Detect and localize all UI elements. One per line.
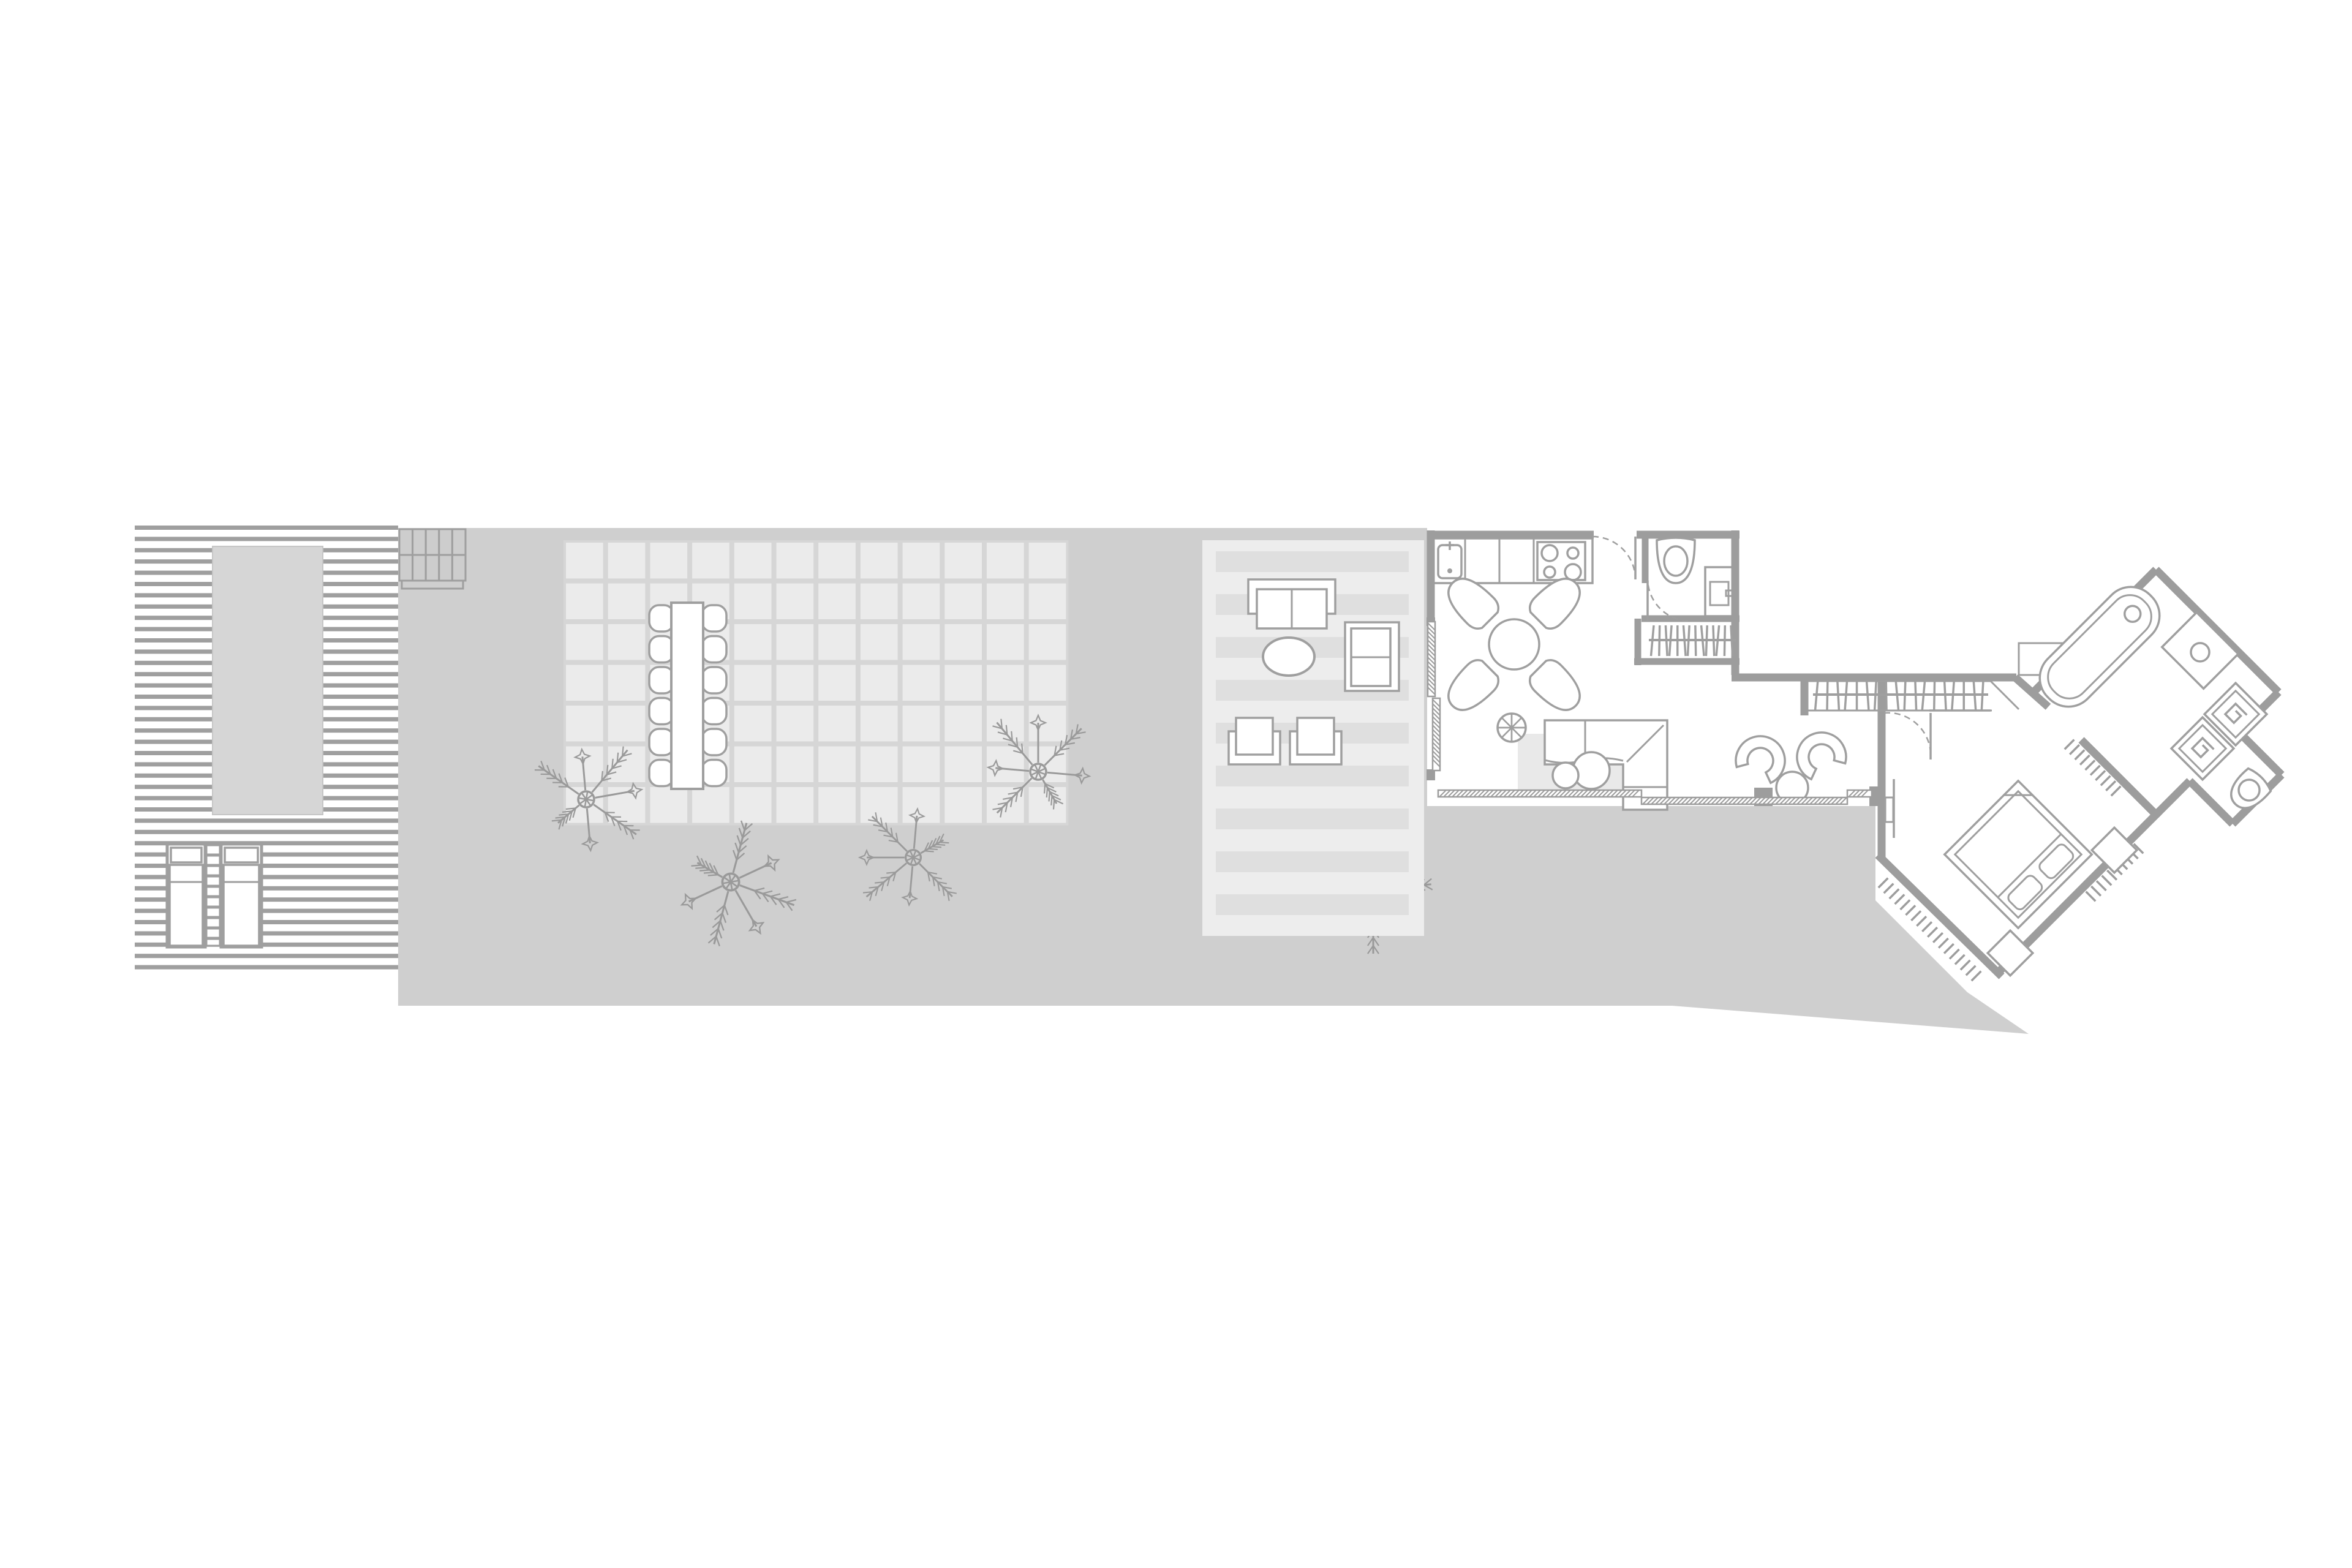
- window-tick: [1966, 966, 1976, 976]
- terrace-slat: [1216, 894, 1409, 915]
- tiled-patio: [563, 540, 1068, 826]
- patio-tile: [734, 543, 772, 579]
- patio-tile: [1029, 584, 1066, 620]
- patio-tile: [861, 787, 898, 823]
- patio-tile: [566, 624, 603, 660]
- patio-tile: [734, 624, 772, 660]
- armchair-seat: [1297, 718, 1334, 755]
- patio-tile: [903, 543, 940, 579]
- deck-plank: [135, 954, 398, 958]
- patio-tile: [944, 665, 982, 701]
- patio-tile: [818, 706, 856, 742]
- patio-tile: [566, 584, 603, 620]
- window-tick: [1911, 911, 1921, 921]
- round-plant: [1498, 714, 1526, 742]
- patio-tile: [818, 665, 856, 701]
- patio-tile: [944, 706, 982, 742]
- terrace-slat: [1216, 551, 1409, 572]
- patio-tile: [692, 543, 729, 579]
- floor-plan-page: [0, 0, 2352, 1568]
- hanger: [1706, 625, 1707, 656]
- wall-tv: [1885, 797, 1893, 822]
- patio-tile: [566, 665, 603, 701]
- patio-tile: [566, 706, 603, 742]
- terrace-slat: [1216, 766, 1409, 786]
- lounger-bed: [170, 865, 203, 946]
- window-tick: [1884, 884, 1894, 894]
- window-tick: [2102, 876, 2112, 886]
- deck-plank: [135, 526, 398, 530]
- patio-tile: [608, 624, 646, 660]
- patio-tile: [944, 624, 982, 660]
- patio-tile: [734, 787, 772, 823]
- patio-tile: [734, 665, 772, 701]
- patio-tile: [818, 787, 856, 823]
- pool-deck: [135, 526, 398, 970]
- dining-chair: [702, 636, 726, 663]
- patio-tile: [861, 543, 898, 579]
- patio-tile: [1029, 543, 1066, 579]
- dining-chair: [702, 729, 726, 755]
- patio-tile: [777, 624, 814, 660]
- hanger: [1827, 680, 1828, 710]
- patio-tile: [903, 624, 940, 660]
- hanger: [1695, 625, 1696, 656]
- window-tick: [1972, 971, 1981, 981]
- floor-plan-canvas: [0, 0, 2352, 1568]
- patio-tile: [777, 543, 814, 579]
- patio-tile: [692, 787, 729, 823]
- paver-steps: [399, 529, 466, 589]
- patio-tile: [818, 543, 856, 579]
- lounge-terrace: [1202, 540, 1424, 936]
- hanger: [1659, 625, 1660, 656]
- patio-tile: [818, 747, 856, 783]
- paver: [426, 555, 439, 581]
- paver: [452, 555, 466, 581]
- paver-ledge: [402, 581, 463, 589]
- lounger-pillow: [225, 848, 258, 862]
- window-tick: [1922, 922, 1932, 932]
- patio-tile: [944, 584, 982, 620]
- paver: [399, 555, 413, 581]
- patio-tile: [1029, 706, 1066, 742]
- window-tick: [1955, 955, 1965, 965]
- patio-tile: [777, 584, 814, 620]
- deck-plank: [135, 965, 398, 970]
- patio-tile: [608, 706, 646, 742]
- patio-tile: [734, 706, 772, 742]
- patio-tile: [903, 665, 940, 701]
- patio-tile: [903, 706, 940, 742]
- patio-tile: [734, 584, 772, 620]
- patio-tile: [944, 543, 982, 579]
- window-tick: [2097, 881, 2106, 891]
- dining-chair: [702, 698, 726, 725]
- patio-tile: [987, 665, 1024, 701]
- window-tick: [1961, 960, 1970, 970]
- paver: [426, 529, 439, 555]
- patio-tile: [987, 706, 1024, 742]
- patio-tile: [777, 706, 814, 742]
- paver: [439, 555, 453, 581]
- long-dining-table: [671, 603, 703, 789]
- paver: [452, 529, 466, 555]
- patio-tile: [861, 665, 898, 701]
- paver: [439, 529, 453, 555]
- sink-drain: [1447, 568, 1452, 573]
- hanger: [1915, 680, 1917, 710]
- window-tick: [1933, 933, 1943, 943]
- lounger-bed: [224, 865, 259, 946]
- patio-tile: [650, 543, 687, 579]
- window-tick: [1890, 889, 1899, 899]
- terrace-slat: [1216, 809, 1409, 829]
- window-tick: [1905, 905, 1915, 915]
- patio-tile: [734, 747, 772, 783]
- window-tick: [1939, 938, 1948, 948]
- window-tick: [1879, 878, 1888, 888]
- patio-tile: [777, 747, 814, 783]
- oval-table: [1263, 638, 1314, 676]
- window-tick: [1944, 944, 1954, 954]
- patio-tile: [777, 787, 814, 823]
- patio-tile: [608, 665, 646, 701]
- window-tick: [1901, 900, 1910, 910]
- window-tick: [2086, 892, 2096, 902]
- paver: [399, 529, 413, 555]
- patio-tile: [861, 584, 898, 620]
- window-strip: [1847, 790, 1872, 797]
- patio-tile: [903, 747, 940, 783]
- hanger: [1886, 680, 1887, 710]
- dining-chair: [702, 760, 726, 786]
- patio-tile: [944, 787, 982, 823]
- hanger: [1934, 680, 1935, 710]
- window-tick: [1917, 916, 1926, 926]
- patio-tile: [944, 747, 982, 783]
- dining-chair: [702, 605, 726, 631]
- patio-tile: [1029, 624, 1066, 660]
- window-tick: [1950, 949, 1959, 959]
- hanger: [1713, 625, 1714, 656]
- coffee-table-small: [1553, 763, 1578, 788]
- patio-tile: [903, 584, 940, 620]
- deck-plank: [135, 818, 398, 823]
- round-dining-table: [1489, 619, 1539, 669]
- lounger-pillow: [171, 848, 202, 862]
- patio-tile: [818, 624, 856, 660]
- terrace-slat: [1216, 851, 1409, 872]
- patio-tile: [861, 624, 898, 660]
- deck-plank: [135, 537, 398, 541]
- patio-tile: [987, 543, 1024, 579]
- patio-tile: [566, 543, 603, 579]
- patio-tile: [987, 584, 1024, 620]
- dining-chair: [702, 667, 726, 693]
- paver: [413, 529, 426, 555]
- window-tick: [1928, 927, 1937, 937]
- hanger: [1904, 680, 1905, 710]
- patio-tile: [1029, 665, 1066, 701]
- patio-tile: [608, 584, 646, 620]
- window-tick: [1895, 894, 1905, 904]
- hanger: [1724, 625, 1725, 656]
- patio-tile: [777, 665, 814, 701]
- patio-tile: [987, 624, 1024, 660]
- patio-tile: [650, 787, 687, 823]
- patio-tile: [861, 747, 898, 783]
- patio-tile: [608, 543, 646, 579]
- window-tick: [2091, 886, 2101, 896]
- armchair-seat: [1236, 718, 1273, 755]
- patio-tile: [861, 706, 898, 742]
- deck-plank: [135, 830, 398, 834]
- patio-tile: [818, 584, 856, 620]
- swimming-pool: [213, 546, 323, 815]
- paver: [413, 555, 426, 581]
